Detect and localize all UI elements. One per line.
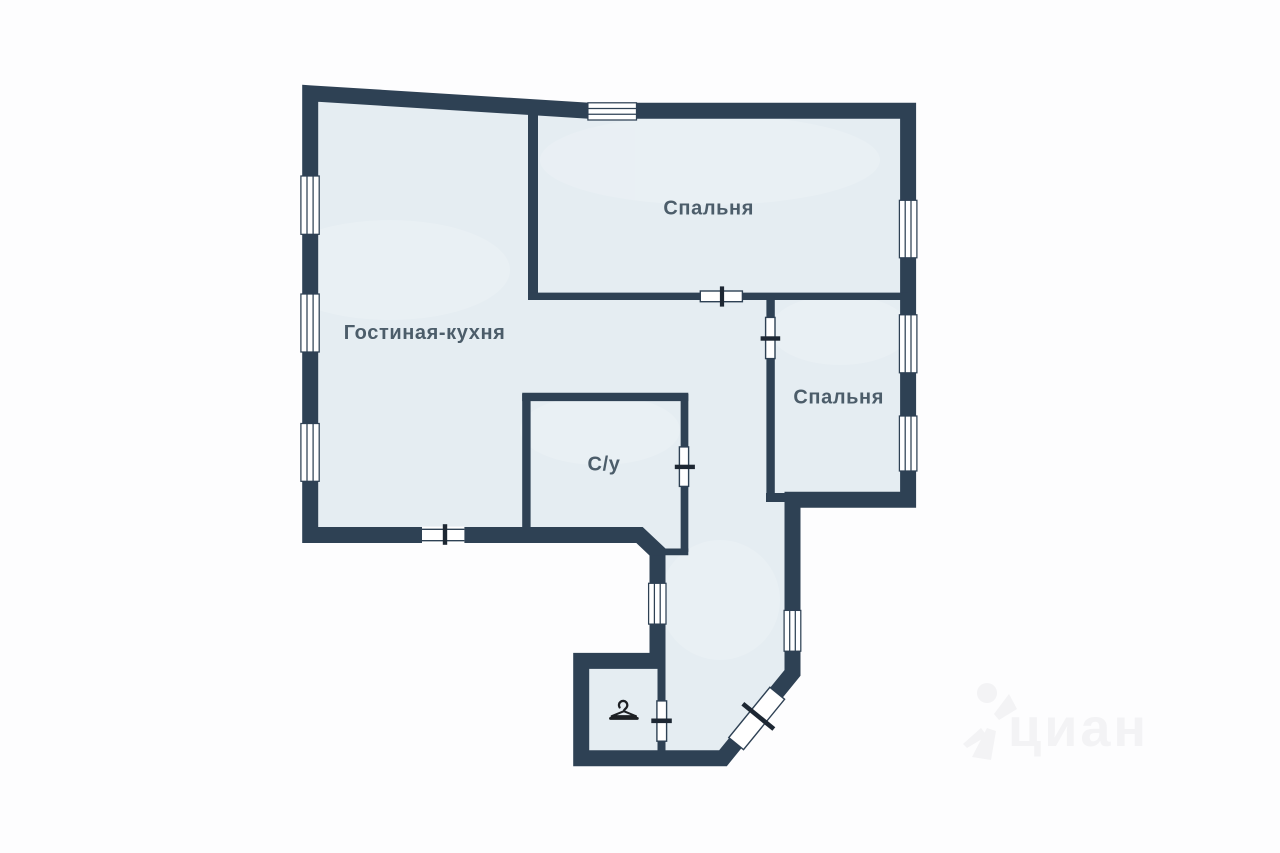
svg-text:С/у: С/у	[588, 454, 621, 476]
svg-text:Спальня: Спальня	[793, 387, 884, 409]
svg-text:Гостиная-кухня: Гостиная-кухня	[344, 322, 506, 344]
svg-text:Спальня: Спальня	[663, 198, 754, 220]
svg-text:циан: циан	[1008, 698, 1149, 758]
